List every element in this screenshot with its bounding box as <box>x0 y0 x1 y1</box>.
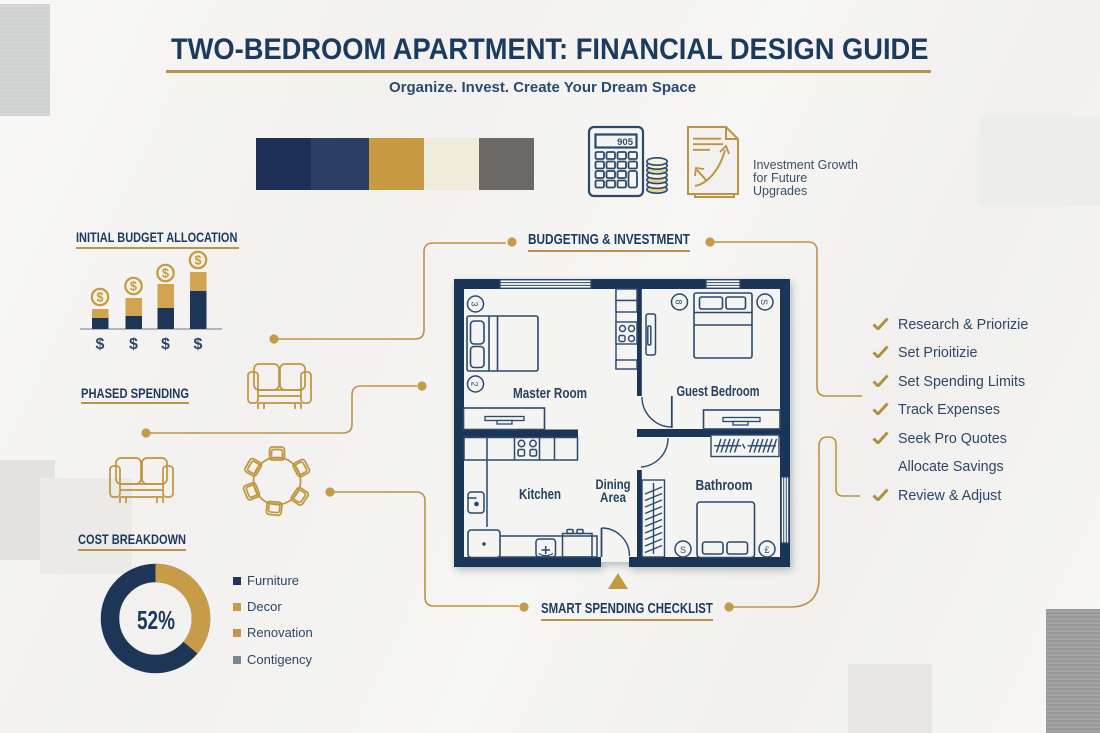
svg-text:$: $ <box>161 336 170 353</box>
svg-text:905: 905 <box>617 137 634 148</box>
svg-text:8: 8 <box>674 299 684 304</box>
svg-text:2: 2 <box>470 381 480 386</box>
svg-text:Bathroom: Bathroom <box>696 478 753 494</box>
svg-text:Kitchen: Kitchen <box>519 487 561 503</box>
svg-text:$: $ <box>96 336 105 353</box>
svg-text:3: 3 <box>470 301 480 306</box>
svg-text:$: $ <box>194 336 203 353</box>
svg-text:Master Room: Master Room <box>513 386 587 402</box>
svg-text:S: S <box>759 299 769 305</box>
svg-text:Guest Bedroom: Guest Bedroom <box>677 384 760 400</box>
svg-text:Area: Area <box>600 490 626 505</box>
svg-text:S: S <box>680 545 686 555</box>
svg-text:£: £ <box>764 545 769 555</box>
svg-text:$: $ <box>129 336 138 353</box>
